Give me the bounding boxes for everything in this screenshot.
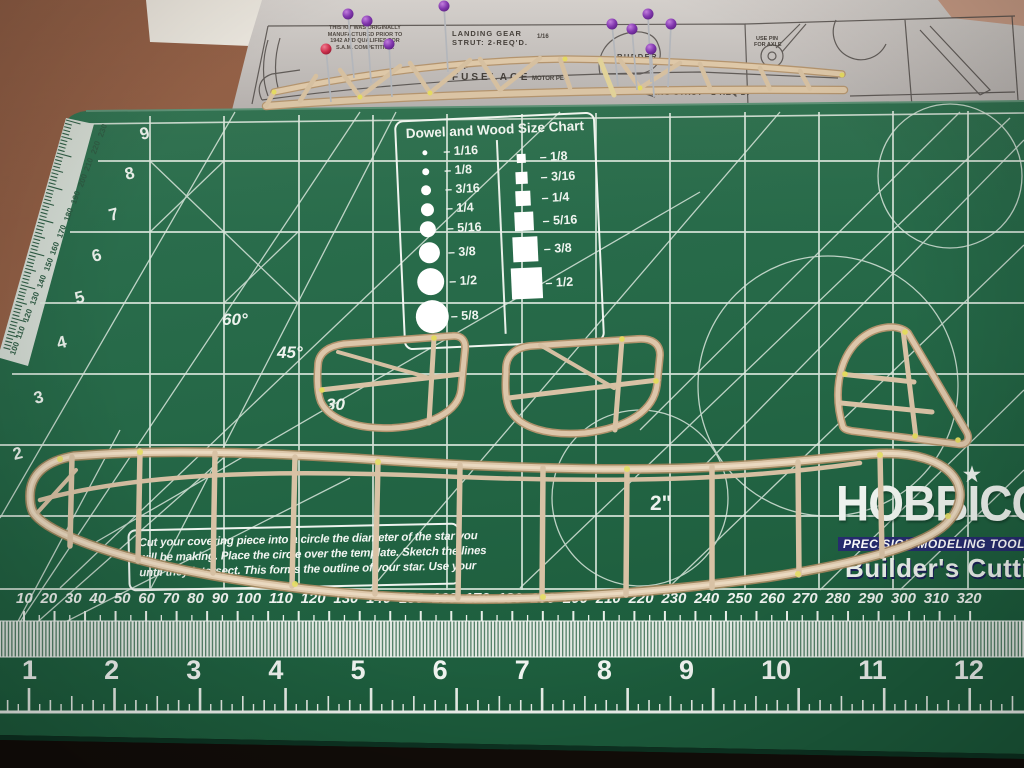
dowel-row-shape xyxy=(419,221,436,238)
left-inch-number: 8 xyxy=(123,163,137,185)
dowel-wood-size-chart: Dowel and Wood Size Chart – 1/16– 1/8– 3… xyxy=(394,112,605,351)
mm-number: 30 xyxy=(65,590,82,607)
dowel-row-label: – 3/8 xyxy=(448,244,476,259)
inch-number: 10 xyxy=(761,655,791,686)
inch-number: 8 xyxy=(597,655,612,686)
mm-number: 230 xyxy=(661,590,686,607)
kit-note-line: 1942 AND QUALIFIES FOR xyxy=(298,38,432,45)
dowel-row-label: – 5/8 xyxy=(450,308,478,323)
wood-row-shape xyxy=(515,172,528,185)
mm-number: 200 xyxy=(563,590,588,607)
angle-label-45: 45° xyxy=(277,343,303,363)
bottom-mm-ruler-numbers: 1020304050607080901001101201301401501601… xyxy=(16,590,982,607)
mm-number: 190 xyxy=(530,590,555,607)
dowel-row-shape-cell xyxy=(411,267,450,296)
dowel-row: – 1/2 xyxy=(411,265,500,296)
photo-scene: THIS KIT WAS ORIGINALLY MANUFACTURED PRI… xyxy=(0,0,1024,768)
dowel-row: – 5/8 xyxy=(412,297,501,334)
wood-row: – 1/2 xyxy=(507,265,596,300)
dowel-row: – 3/8 xyxy=(409,239,498,264)
plan-label-motor-peg: MOTOR PEG xyxy=(532,76,569,82)
inch-number: 4 xyxy=(268,655,283,686)
wood-row-shape xyxy=(515,191,531,207)
left-mm-number: 160 xyxy=(49,240,62,256)
plan-label-fuselage: FUSELAGE xyxy=(452,72,530,83)
dowel-row-shape xyxy=(416,268,444,296)
dowel-row: – 1/8 xyxy=(406,161,495,179)
two-inch-label: 2" xyxy=(650,492,672,516)
dowel-row-label: – 3/16 xyxy=(445,181,480,197)
plan-label-rudder: RUDDER xyxy=(617,52,658,61)
mm-number: 130 xyxy=(333,590,358,607)
wood-row: – 3/8 xyxy=(505,234,594,263)
left-mm-number: 120 xyxy=(21,307,34,323)
wood-row-shape-cell xyxy=(503,190,542,207)
wood-row-label: – 5/16 xyxy=(542,212,577,228)
dowel-row-label: – 1/2 xyxy=(449,273,477,288)
kit-note-line: MANUFACTURED PRIOR TO xyxy=(298,32,432,39)
plan-label-wing-strut: WING STRUT - 2-REQ'D. xyxy=(647,88,750,97)
left-mm-number: 110 xyxy=(14,324,27,339)
left-mm-number: 170 xyxy=(55,223,68,239)
dowel-row-shape xyxy=(415,299,449,333)
dowel-row-shape-cell xyxy=(412,299,451,334)
wood-row-label: – 1/2 xyxy=(545,274,573,289)
wood-row-shape-cell xyxy=(502,171,541,185)
dowel-row-shape-cell xyxy=(409,220,448,238)
inch-number: 1 xyxy=(22,655,37,686)
wood-row: – 3/16 xyxy=(502,168,591,186)
mm-number: 300 xyxy=(891,590,916,607)
plan-label-size-note-sq: 1/16 SQ. xyxy=(446,64,468,70)
dowel-row: – 3/16 xyxy=(407,180,496,198)
inch-number: 12 xyxy=(954,655,984,686)
angle-label-60: 60° xyxy=(222,310,248,330)
dowel-row-label: – 1/16 xyxy=(443,143,478,159)
mm-number: 80 xyxy=(187,590,204,607)
left-mm-number: 100 xyxy=(8,341,21,357)
mm-number: 100 xyxy=(236,590,261,607)
logo-star-icon: ★ xyxy=(963,462,981,487)
wood-column: – 1/8– 3/16– 1/4– 5/16– 3/8– 1/2 xyxy=(501,148,596,300)
mm-number: 260 xyxy=(760,590,785,607)
mm-number: 280 xyxy=(825,590,850,607)
kit-note-line: THIS KIT WAS ORIGINALLY xyxy=(298,25,432,32)
wood-row: – 5/16 xyxy=(504,209,593,232)
left-mm-number: 130 xyxy=(28,291,41,307)
dowel-row-shape-cell xyxy=(405,149,443,156)
inch-number: 3 xyxy=(186,655,201,686)
dowel-row-shape-cell xyxy=(409,241,448,264)
plan-label-axle-2: FOR AXLE xyxy=(754,42,782,48)
mm-number: 320 xyxy=(957,590,982,607)
inch-number: 2 xyxy=(104,655,119,686)
wood-row-label: – 1/4 xyxy=(541,189,569,204)
dowel-row: – 1/16 xyxy=(405,142,494,160)
mm-number: 220 xyxy=(629,590,654,607)
left-inch-number: 4 xyxy=(55,332,69,354)
dowel-row: – 1/4 xyxy=(408,199,497,217)
plan-label-landing-gear-2: STRUT: 2-REQ'D. xyxy=(452,38,528,47)
left-inch-number: 5 xyxy=(73,287,87,309)
mm-number: 120 xyxy=(301,590,326,607)
dowel-column: – 1/16– 1/8– 3/16– 1/4– 5/16– 3/8– 1/2– … xyxy=(405,142,501,334)
mm-number: 70 xyxy=(163,590,180,607)
mm-number: 90 xyxy=(212,590,229,607)
inch-number: 11 xyxy=(858,655,887,686)
wood-row-shape xyxy=(516,153,525,162)
wood-row-label: – 3/16 xyxy=(540,169,575,185)
wood-row-shape-cell xyxy=(505,236,544,263)
wood-row-shape-cell xyxy=(507,267,546,300)
inch-number: 7 xyxy=(515,655,530,686)
left-mm-number: 140 xyxy=(35,274,48,290)
left-inch-number: 7 xyxy=(107,204,121,226)
mm-number: 270 xyxy=(793,590,818,607)
logo-tagline: PRECISION MODELING TOOLS xyxy=(838,537,1024,551)
mm-number: 150 xyxy=(399,590,424,607)
left-mm-number: 150 xyxy=(42,257,55,273)
wood-row: – 1/8 xyxy=(501,148,590,166)
wood-row-shape xyxy=(510,267,542,299)
left-inch-number: 2 xyxy=(11,443,25,465)
mm-number: 140 xyxy=(366,590,391,607)
wood-row-label: – 1/8 xyxy=(539,149,567,164)
wood-row-shape-cell xyxy=(504,211,543,232)
mm-number: 10 xyxy=(16,590,33,607)
dowel-row-label: – 5/16 xyxy=(447,220,482,236)
mm-number: 40 xyxy=(89,590,106,607)
dowel-row-label: – 1/8 xyxy=(444,162,472,177)
left-inch-number: 9 xyxy=(138,123,152,145)
hobbico-logo-text: HOBBICO xyxy=(836,474,1024,532)
left-mm-number: 190 xyxy=(69,190,82,206)
left-inch-number: 6 xyxy=(90,245,104,267)
size-chart-title: Dowel and Wood Size Chart xyxy=(396,118,593,142)
left-mm-number: 220 xyxy=(89,139,102,155)
mm-number: 110 xyxy=(269,590,293,607)
inch-number: 9 xyxy=(679,655,694,686)
mm-number: 50 xyxy=(114,590,131,607)
mm-number: 310 xyxy=(924,590,949,607)
left-mm-number: 200 xyxy=(76,173,89,189)
wood-row: – 1/4 xyxy=(503,188,592,207)
plan-kit-note: THIS KIT WAS ORIGINALLY MANUFACTURED PRI… xyxy=(298,25,432,51)
star-instructions-box: Cut your covering piece into a circle th… xyxy=(127,523,460,592)
mm-number: 180 xyxy=(497,590,522,607)
dowel-row: – 5/16 xyxy=(409,218,498,238)
left-mm-number: 210 xyxy=(83,156,96,172)
dowel-row-shape xyxy=(422,168,429,175)
dowel-row-shape xyxy=(420,202,434,216)
plan-label-size-note: 1/16 xyxy=(537,34,549,40)
kit-note-line: S.A.M. COMPETITION. xyxy=(298,45,432,52)
mm-number: 210 xyxy=(596,590,621,607)
left-mm-number: 230 xyxy=(96,123,109,139)
mm-number: 240 xyxy=(694,590,719,607)
wood-row-shape xyxy=(512,236,538,262)
inch-number: 5 xyxy=(351,655,366,686)
mm-number: 60 xyxy=(138,590,155,607)
mm-number: 250 xyxy=(727,590,752,607)
left-inch-number: 3 xyxy=(32,387,46,409)
inch-number: 6 xyxy=(433,655,448,686)
plan-label-landing-gear: LANDING GEAR xyxy=(452,29,522,38)
mm-number: 290 xyxy=(858,590,883,607)
angle-label-30: 30 xyxy=(326,395,345,415)
wood-row-shape xyxy=(514,211,534,231)
dowel-row-shape-cell xyxy=(408,202,447,217)
logo-product-line: Builder's Cutting xyxy=(845,553,1024,584)
dowel-row-shape xyxy=(422,150,427,155)
mm-number: 170 xyxy=(465,590,490,607)
wood-row-shape-cell xyxy=(502,153,540,164)
dowel-row-shape-cell xyxy=(407,184,445,196)
dowel-row-shape xyxy=(421,185,431,195)
wood-row-label: – 3/8 xyxy=(544,240,572,255)
mm-number: 160 xyxy=(432,590,457,607)
left-mm-number: 180 xyxy=(62,207,75,223)
text-overlay-layer: THIS KIT WAS ORIGINALLY MANUFACTURED PRI… xyxy=(0,0,1024,768)
dowel-row-shape-cell xyxy=(406,167,444,176)
bottom-inch-ruler-numbers: 123456789101112 xyxy=(22,655,984,686)
dowel-row-label: – 1/4 xyxy=(446,200,474,215)
mm-number: 20 xyxy=(40,590,57,607)
dowel-row-shape xyxy=(418,242,440,264)
